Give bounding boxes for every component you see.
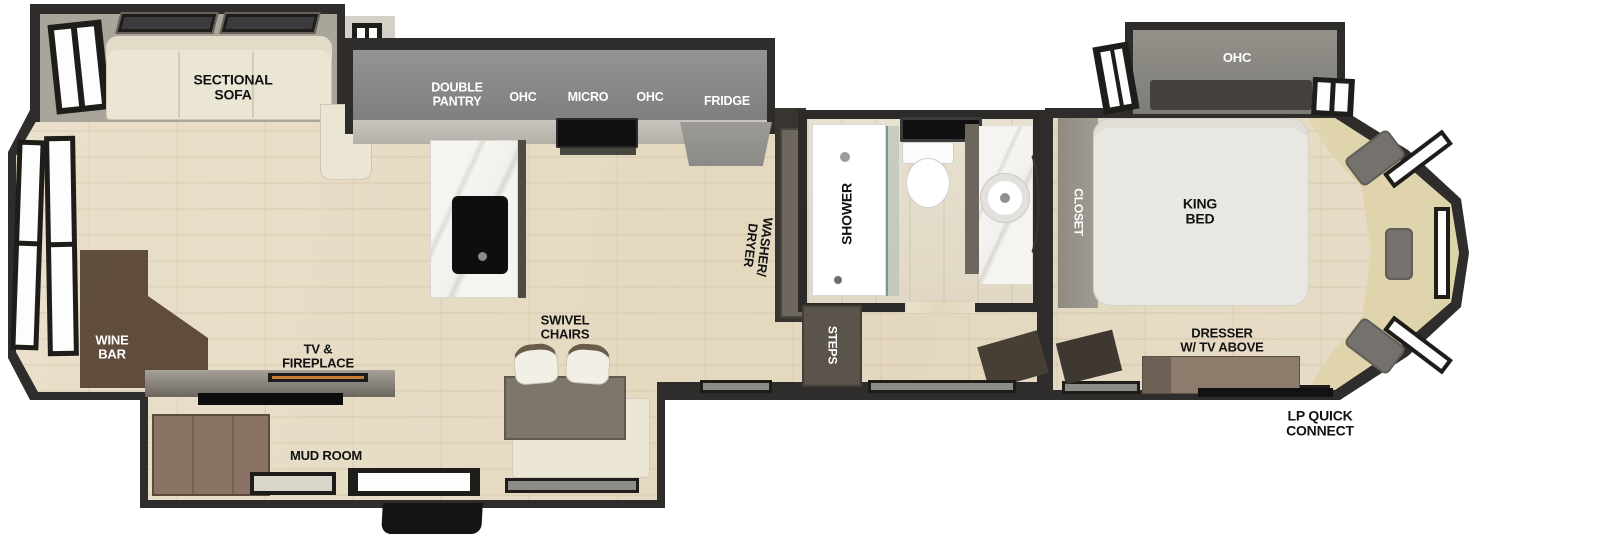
- label-steps: STEPS: [825, 326, 838, 364]
- label-ohc-bedroom: OHC: [1223, 51, 1251, 65]
- label-closet: CLOSET: [1071, 188, 1084, 235]
- entry-step-bump: [381, 503, 483, 534]
- label-mud-room: MUD ROOM: [290, 449, 362, 463]
- label-tv-fireplace: TV & FIREPLACE: [282, 343, 354, 372]
- bed-headboard: [1150, 80, 1312, 110]
- vanity-mirror: [1014, 148, 1040, 260]
- kitchen-faucet: [478, 252, 487, 261]
- shower-glass: [886, 126, 899, 296]
- sink-faucet: [1000, 193, 1010, 203]
- bedroom-side-window: [1311, 77, 1355, 117]
- label-wine-bar: WINE BAR: [95, 334, 128, 363]
- shower-head-dot: [840, 152, 850, 162]
- label-fridge: FRIDGE: [704, 95, 750, 109]
- swivel-chair-left: [512, 342, 559, 386]
- label-shower: SHOWER: [839, 183, 854, 245]
- bath-door-opening: [905, 300, 975, 313]
- bottom-window-bedroom-left: [1062, 381, 1140, 394]
- dresser-tv: [1198, 388, 1333, 397]
- label-lp-quick-connect: LP QUICK CONNECT: [1286, 409, 1354, 440]
- label-swivel-chairs: SWIVEL CHAIRS: [541, 314, 590, 343]
- fireplace-flame: [272, 376, 364, 379]
- label-double-pantry: DOUBLE PANTRY: [431, 81, 483, 109]
- bottom-window-hall: [868, 380, 1016, 393]
- label-washer-dryer: WASHER/ DRYER: [739, 215, 775, 277]
- label-ohc-kitchen-right: OHC: [636, 91, 663, 105]
- sofa-slide-skylight-right: [219, 12, 320, 34]
- floorplan-canvas: SECTIONAL SOFA DOUBLE PANTRY OHC MICRO O…: [0, 0, 1600, 540]
- booth-window: [505, 478, 639, 493]
- tv-screen: [198, 393, 343, 405]
- cooktop-front: [560, 148, 636, 155]
- mudroom-hatch: [250, 472, 336, 495]
- label-micro: MICRO: [568, 91, 609, 105]
- label-ohc-kitchen-left: OHC: [509, 91, 536, 105]
- kitchen-cabinet-band: [353, 50, 767, 126]
- label-sectional-sofa: SECTIONAL SOFA: [193, 73, 272, 104]
- bottom-window-kitchen: [700, 380, 772, 393]
- toilet-bowl: [906, 158, 950, 208]
- label-dresser: DRESSER W/ TV ABOVE: [1180, 327, 1263, 356]
- sofa-slide-skylight-left: [115, 12, 218, 34]
- fridge-body: [680, 122, 772, 166]
- entry-door: [348, 468, 480, 496]
- rear-window-right: [44, 136, 79, 357]
- bath-partition: [965, 124, 979, 274]
- cap-window-middle: [1434, 207, 1450, 299]
- sofa-slide-corner-window: [47, 19, 110, 114]
- swivel-chair-right: [565, 343, 612, 386]
- label-king-bed: KING BED: [1183, 197, 1217, 228]
- sofa-seam: [178, 52, 180, 118]
- swivel-table: [504, 376, 626, 440]
- kitchen-sink: [452, 196, 508, 274]
- cooktop: [556, 118, 638, 148]
- shower-control-dot: [834, 276, 842, 284]
- bench-pillow-middle: [1385, 228, 1413, 280]
